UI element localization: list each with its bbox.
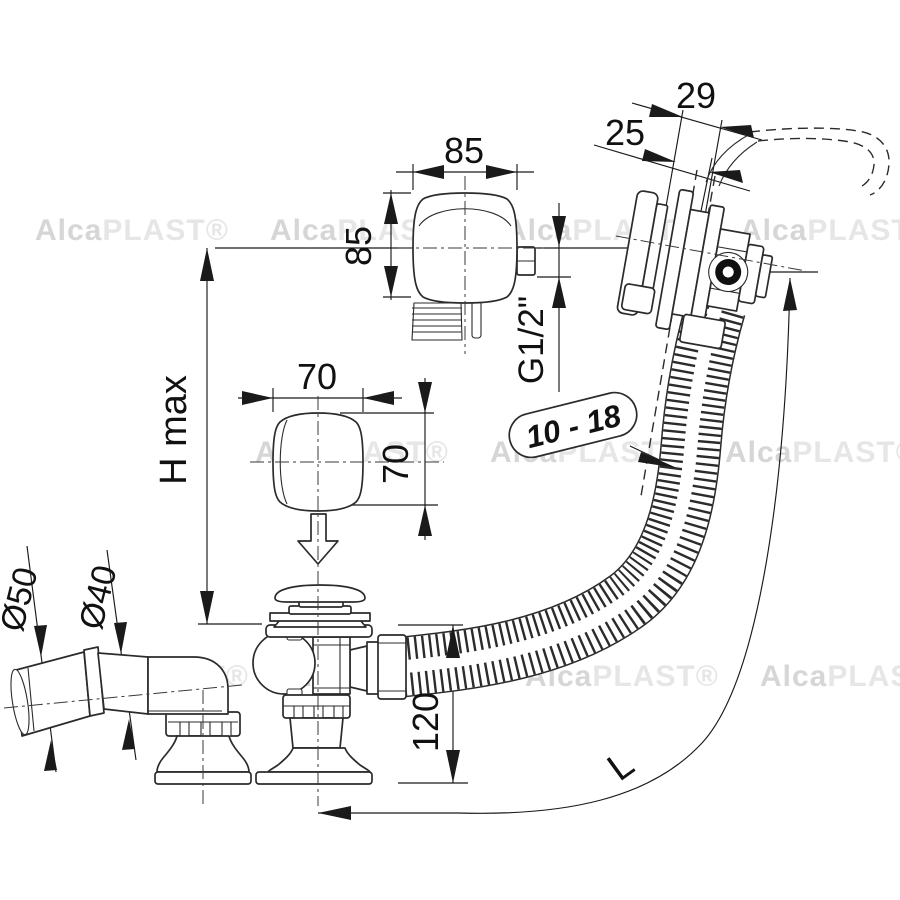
drain-body [253,631,406,784]
dim-knob-height-label: 70 [375,444,416,484]
alcaplast-watermark: AlcaPLAST® [740,214,900,247]
dim-outlet-d50-label: Ø50 [0,564,46,636]
popup-plug [266,585,372,637]
alcaplast-watermark: AlcaPLAST® [35,214,229,247]
dim-height-max-label: H max [153,375,195,485]
alcaplast-watermark: AlcaPLAST® [760,660,900,693]
alcaplast-watermark: AlcaPLAST® [725,436,900,469]
drain-overflow-diagram: AlcaPLAST®AlcaPLAST®AlcaPLAST®AlcaPLAST®… [0,0,900,900]
technical-drawing-canvas: AlcaPLAST®AlcaPLAST®AlcaPLAST®AlcaPLAST®… [0,0,900,900]
dim-hose-length-label: L [600,743,642,789]
dim-knob-width-label: 70 [297,356,337,397]
dim-box-height-label: 85 [338,226,379,266]
dim-edge-inner-label: 25 [605,112,645,153]
dim-edge-outer-label: 29 [676,75,716,116]
dim-drain-height-label: 120 [405,692,446,752]
dim-thread-label: G1/2" [512,296,551,384]
dim-box-width-label: 85 [444,130,484,171]
